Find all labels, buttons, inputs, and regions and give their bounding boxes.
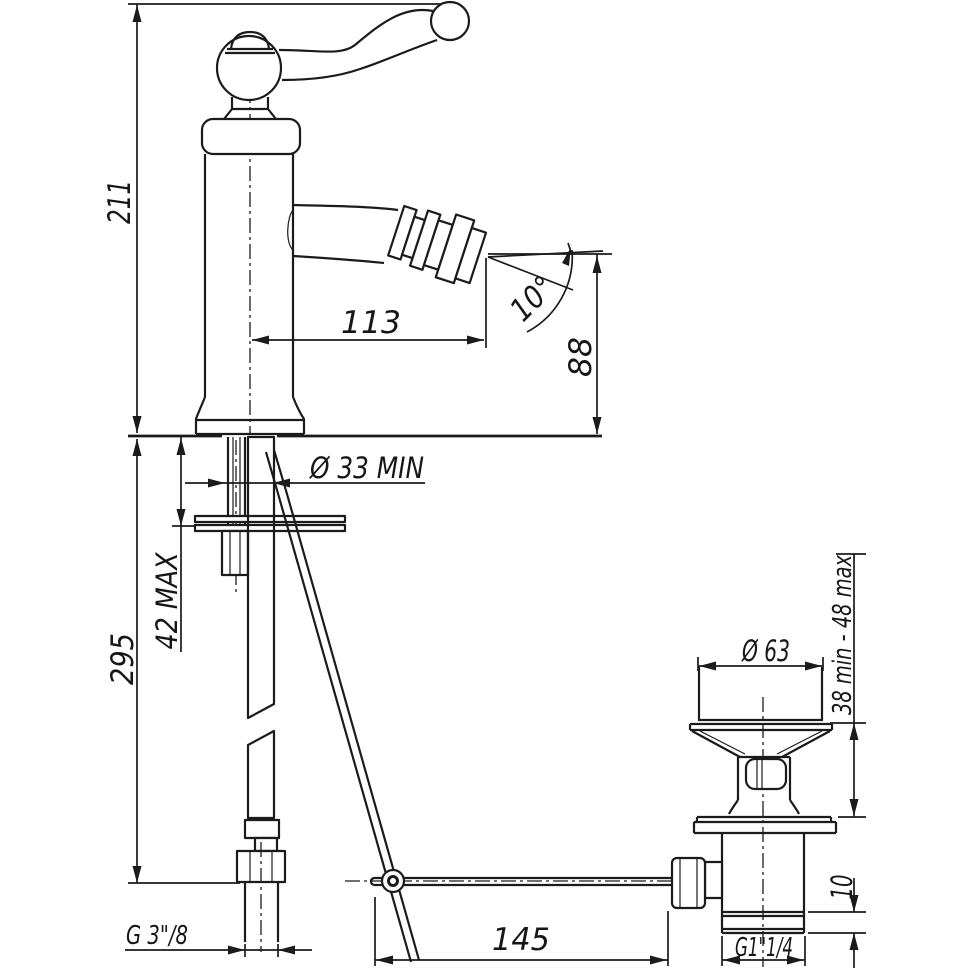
aerator — [386, 198, 488, 287]
waste-cone — [692, 731, 830, 757]
body-collar — [202, 119, 300, 154]
rod-gland-nut — [672, 858, 705, 908]
labels: 211 295 42 MAX Ø 33 MIN 113 10° 88 Ø 63 … — [102, 180, 859, 963]
supply-hose-lower — [248, 731, 274, 818]
label-spout-reach: 113 — [341, 305, 401, 341]
mounting-plate — [195, 516, 345, 522]
label-clamp-range: 38 min - 48 max — [828, 555, 858, 715]
faucet — [196, 2, 488, 434]
handle-lever — [279, 10, 433, 52]
body-column — [205, 154, 293, 397]
rod-gland-boss — [705, 862, 722, 898]
overflow-slot — [746, 759, 786, 789]
technical-drawing: 211 295 42 MAX Ø 33 MIN 113 10° 88 Ø 63 … — [0, 0, 970, 970]
label-hose-length: 295 — [105, 633, 141, 685]
label-deck-max: 42 MAX — [150, 552, 184, 650]
hose-crimp-collar — [245, 820, 279, 838]
lock-ring — [694, 817, 836, 833]
label-flange-dia: Ø 63 — [741, 634, 790, 668]
handle-knob — [431, 2, 469, 40]
label-height-total: 211 — [102, 180, 138, 224]
under-deck — [195, 437, 345, 952]
label-waste-thread: G1"1/4 — [735, 933, 793, 963]
label-rod-reach: 145 — [492, 922, 550, 958]
label-spout-height: 88 — [563, 337, 599, 377]
drawing-canvas: 211 295 42 MAX Ø 33 MIN 113 10° 88 Ø 63 … — [0, 0, 970, 970]
label-supply-thread: G 3"/8 — [126, 921, 188, 951]
label-spout-angle: 10° — [503, 269, 562, 328]
rod-ball-joint — [382, 870, 404, 892]
supply-hose-upper — [248, 437, 274, 718]
spout — [293, 205, 398, 210]
waste-tailpiece — [722, 912, 804, 933]
mounting-nut — [222, 531, 248, 575]
label-hole-min: Ø 33 MIN — [309, 451, 424, 485]
handle-ball — [217, 36, 281, 100]
label-collar-height: 10 — [825, 875, 859, 900]
pop-up-waste — [672, 667, 836, 967]
waste-flange — [698, 667, 823, 720]
